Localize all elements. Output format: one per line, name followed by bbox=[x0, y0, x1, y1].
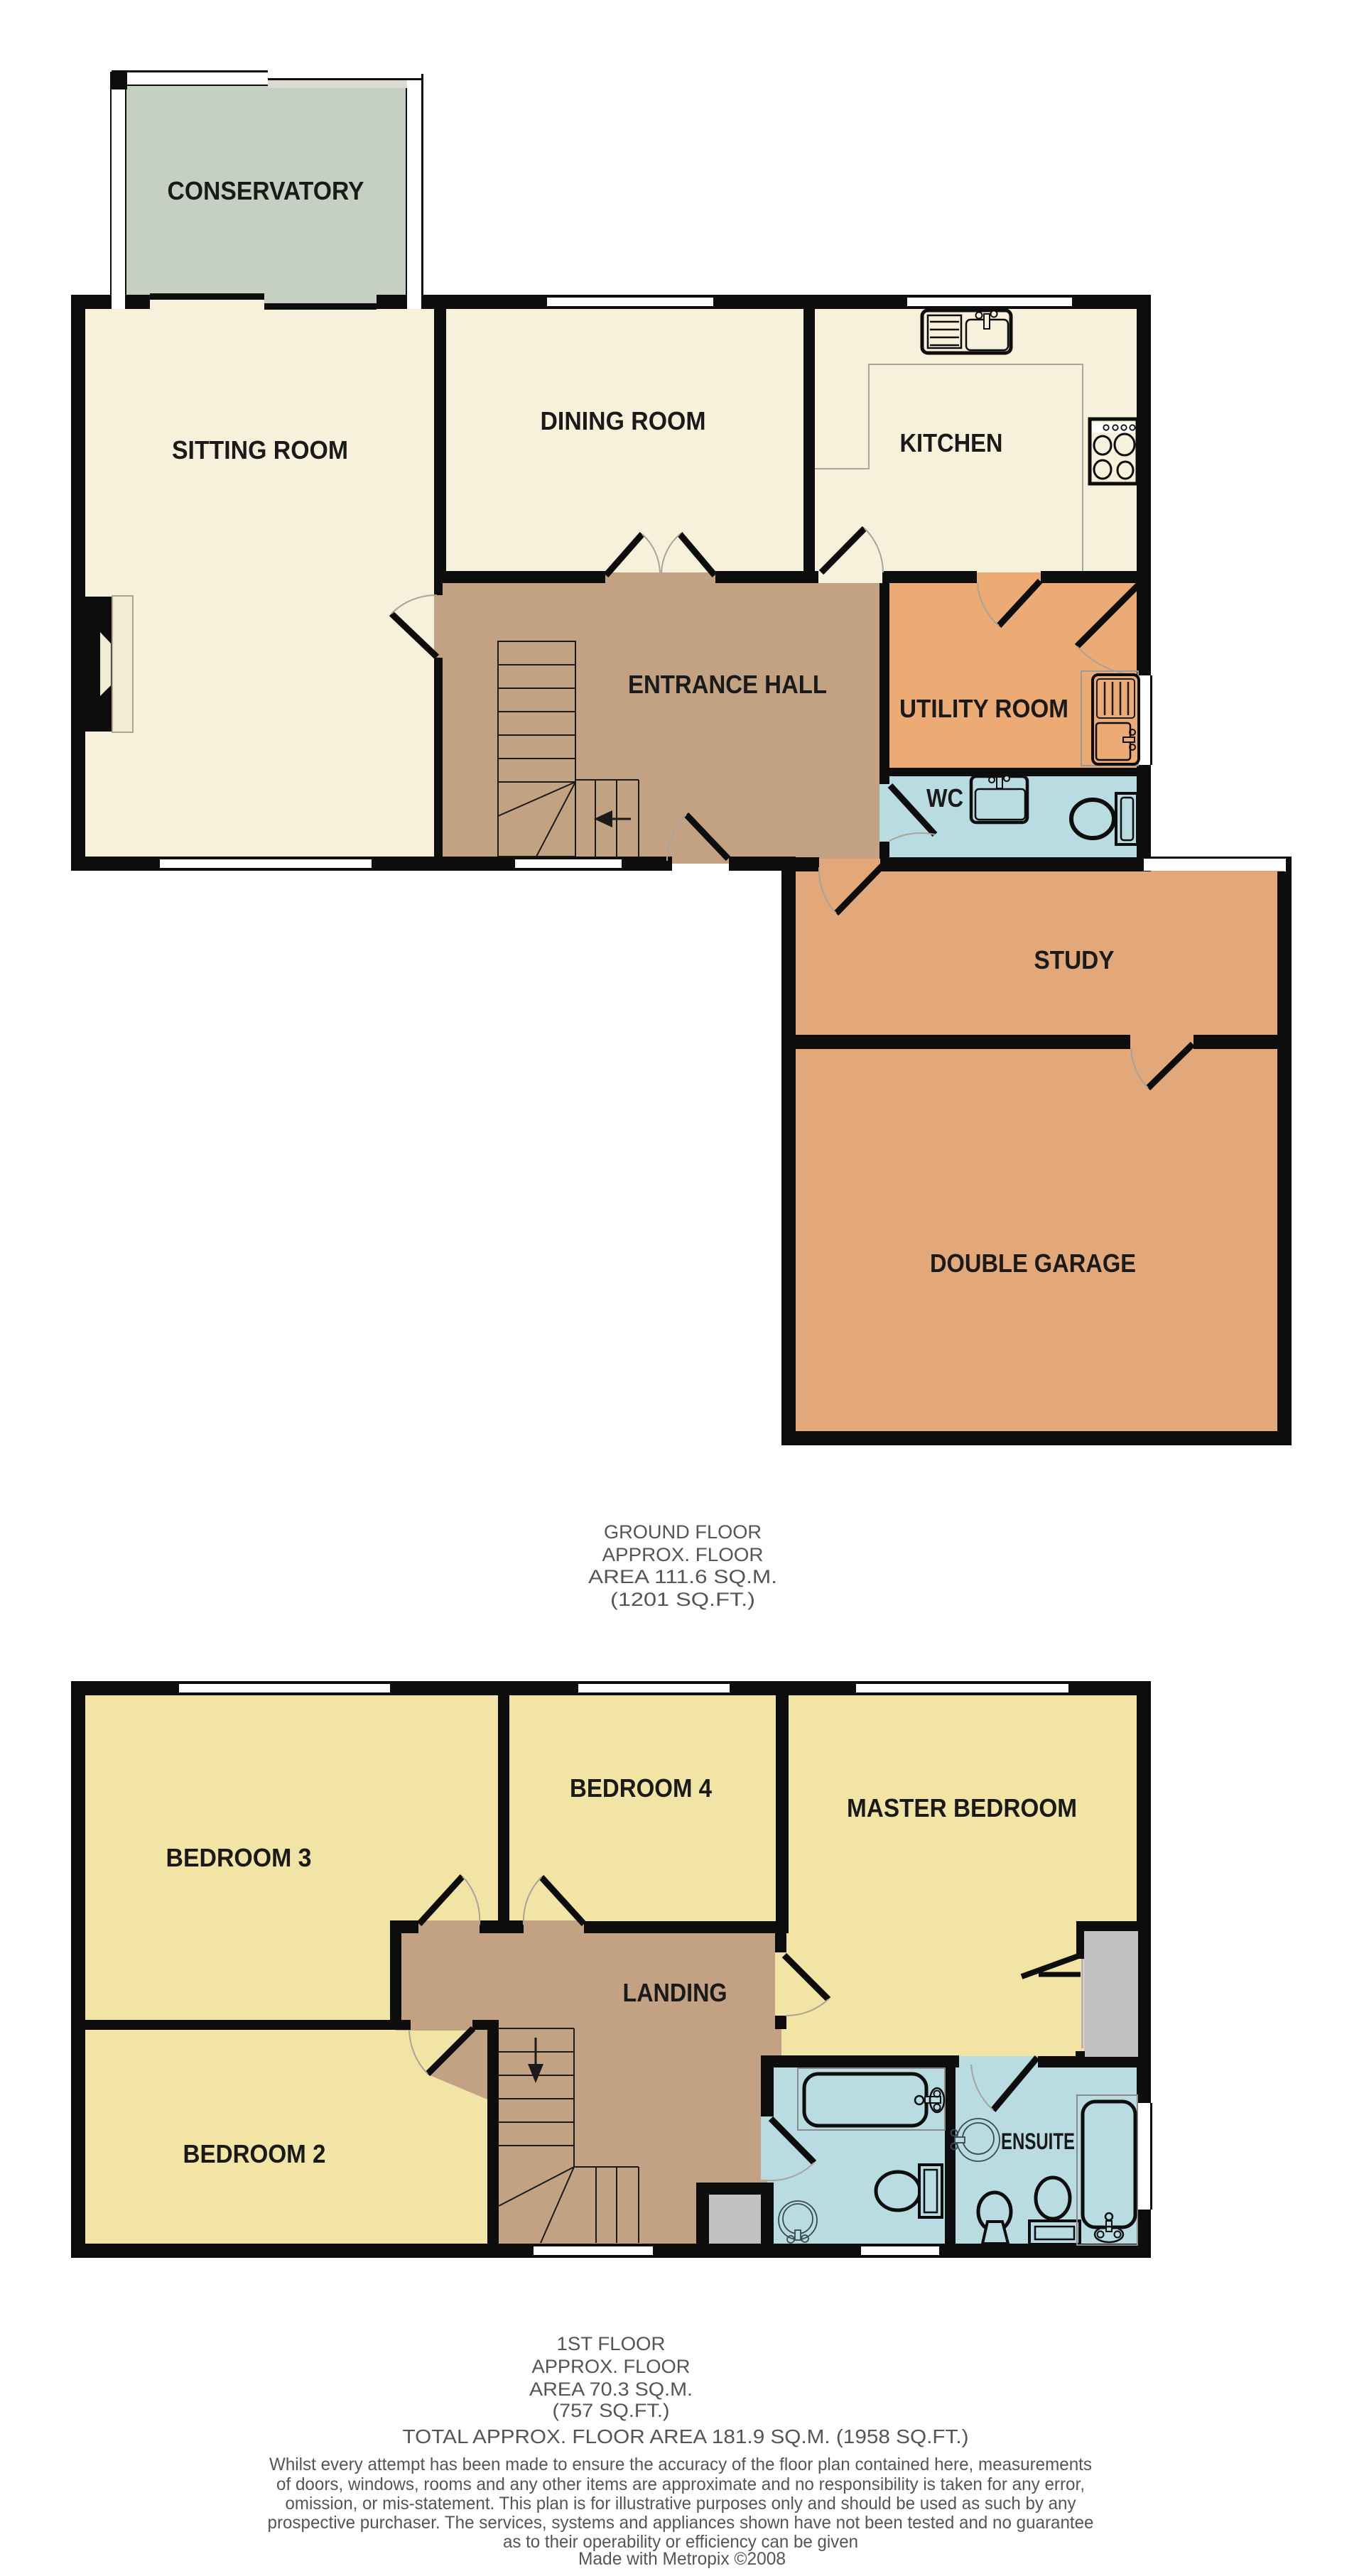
svg-text:(757 SQ.FT.): (757 SQ.FT.) bbox=[553, 2400, 670, 2421]
svg-text:WC: WC bbox=[926, 783, 963, 813]
svg-text:Made with Metropix ©2008: Made with Metropix ©2008 bbox=[578, 2549, 786, 2569]
svg-text:AREA 111.6 SQ.M.: AREA 111.6 SQ.M. bbox=[588, 1566, 777, 1587]
svg-text:KITCHEN: KITCHEN bbox=[900, 428, 1003, 457]
svg-text:Whilst every attempt has been: Whilst every attempt has been made to en… bbox=[269, 2455, 1092, 2474]
svg-text:BEDROOM 3: BEDROOM 3 bbox=[166, 1843, 312, 1872]
svg-text:BEDROOM 2: BEDROOM 2 bbox=[183, 2139, 326, 2168]
svg-text:1ST FLOOR: 1ST FLOOR bbox=[557, 2333, 666, 2354]
svg-text:MASTER BEDROOM: MASTER BEDROOM bbox=[847, 1793, 1077, 1822]
svg-text:DINING ROOM: DINING ROOM bbox=[541, 406, 706, 435]
svg-text:ENTRANCE HALL: ENTRANCE HALL bbox=[628, 670, 827, 699]
svg-text:LANDING: LANDING bbox=[623, 1978, 727, 2007]
svg-text:AREA 70.3 SQ.M.: AREA 70.3 SQ.M. bbox=[529, 2379, 693, 2400]
svg-text:CONSERVATORY: CONSERVATORY bbox=[168, 176, 364, 205]
svg-text:BEDROOM 4: BEDROOM 4 bbox=[570, 1773, 712, 1803]
svg-text:TOTAL APPROX. FLOOR AREA 181.9: TOTAL APPROX. FLOOR AREA 181.9 SQ.M. (19… bbox=[403, 2425, 969, 2447]
svg-text:of doors, windows, rooms and a: of doors, windows, rooms and any other i… bbox=[276, 2474, 1085, 2494]
svg-text:APPROX. FLOOR: APPROX. FLOOR bbox=[602, 1544, 764, 1565]
svg-text:omission, or mis-statement. Th: omission, or mis-statement. This plan is… bbox=[286, 2494, 1076, 2513]
svg-text:DOUBLE GARAGE: DOUBLE GARAGE bbox=[930, 1249, 1136, 1278]
svg-text:prospective purchaser. The ser: prospective purchaser. The services, sys… bbox=[268, 2513, 1094, 2533]
svg-text:(1201 SQ.FT.): (1201 SQ.FT.) bbox=[610, 1589, 755, 1610]
svg-text:UTILITY ROOM: UTILITY ROOM bbox=[899, 694, 1068, 723]
svg-text:STUDY: STUDY bbox=[1034, 945, 1115, 974]
svg-text:ENSUITE: ENSUITE bbox=[1001, 2129, 1075, 2154]
svg-text:APPROX. FLOOR: APPROX. FLOOR bbox=[532, 2356, 691, 2377]
svg-text:GROUND FLOOR: GROUND FLOOR bbox=[604, 1521, 762, 1543]
svg-text:SITTING ROOM: SITTING ROOM bbox=[172, 435, 348, 464]
